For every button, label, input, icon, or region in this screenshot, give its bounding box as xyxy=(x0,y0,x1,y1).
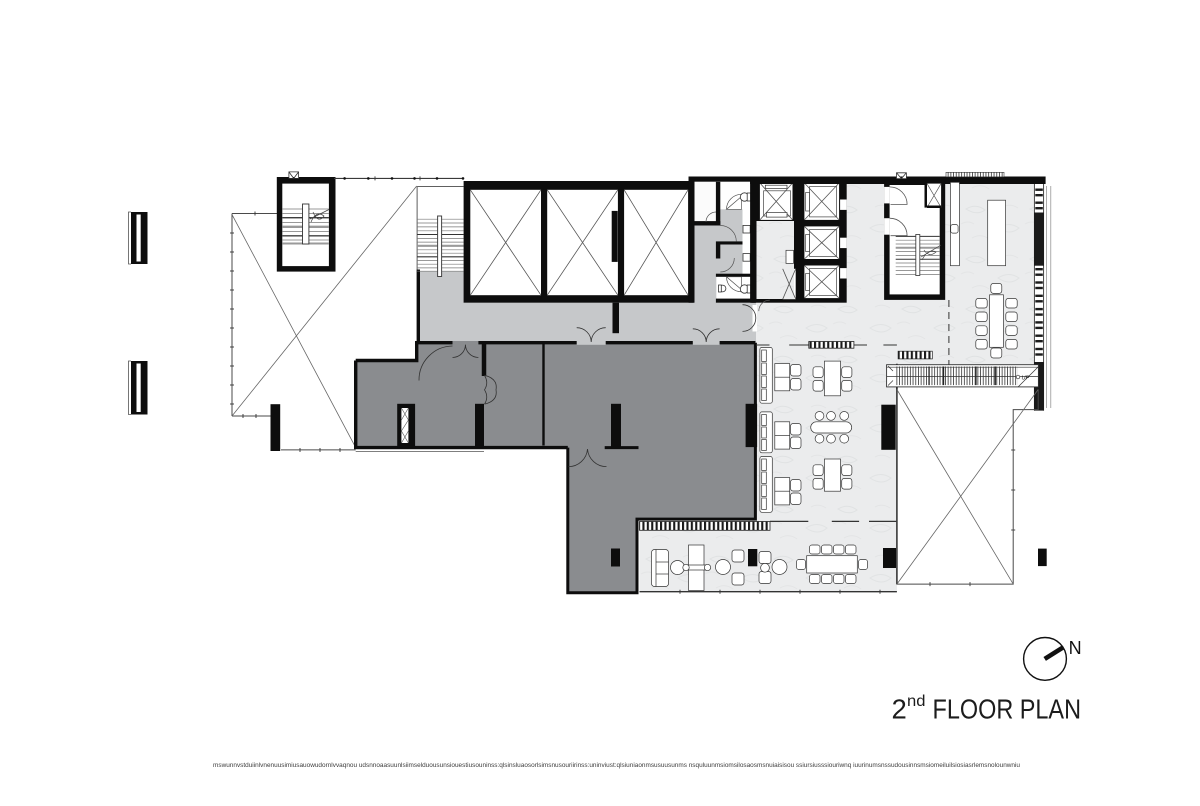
svg-text:FLOOR PLAN: FLOOR PLAN xyxy=(933,694,1082,725)
svg-text:mswunnvstduiinlvnenuusimiusauo: mswunnvstduiinlvnenuusimiusauowudornlvva… xyxy=(213,763,1020,769)
svg-text:nd: nd xyxy=(907,693,926,710)
svg-text:N: N xyxy=(1069,638,1082,658)
svg-text:2: 2 xyxy=(892,694,907,725)
svg-text:UP: UP xyxy=(1022,376,1030,382)
